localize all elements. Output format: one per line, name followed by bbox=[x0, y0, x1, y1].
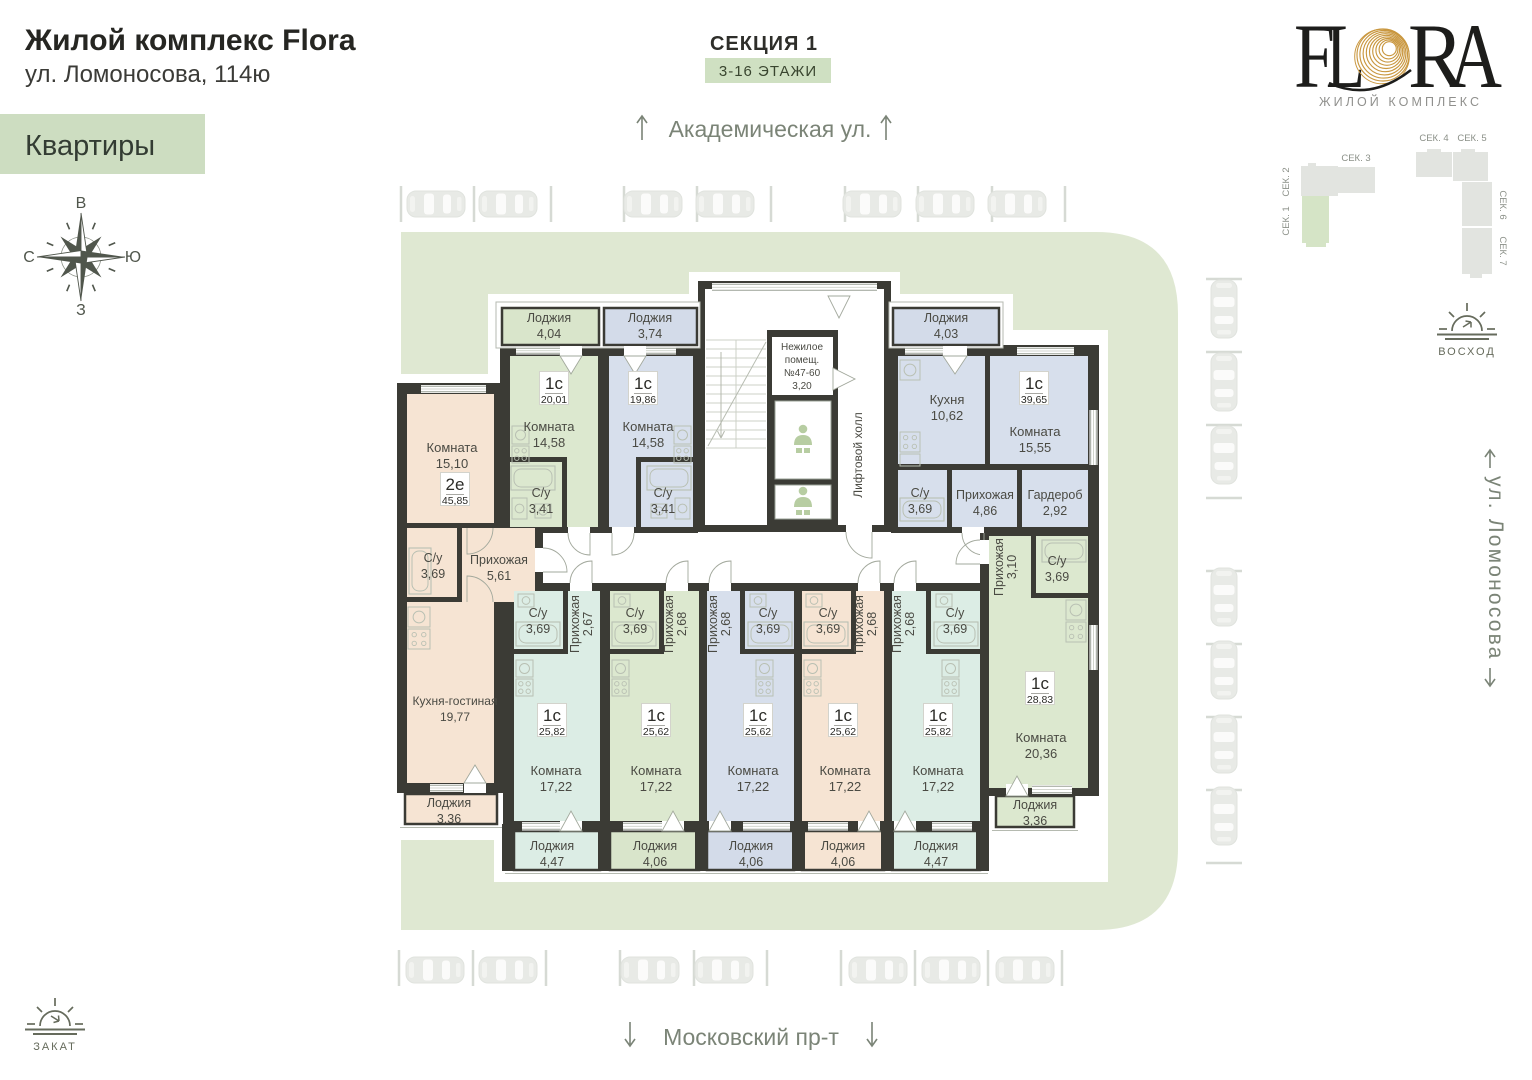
svg-text:Лоджия: Лоджия bbox=[1013, 798, 1057, 812]
svg-text:15,10: 15,10 bbox=[436, 456, 469, 471]
svg-text:3,41: 3,41 bbox=[651, 502, 675, 516]
svg-text:4,06: 4,06 bbox=[831, 855, 855, 869]
svg-text:2,68: 2,68 bbox=[903, 612, 917, 636]
svg-text:3,69: 3,69 bbox=[756, 622, 780, 636]
svg-text:1с: 1с bbox=[543, 706, 561, 725]
svg-text:4,47: 4,47 bbox=[540, 855, 564, 869]
svg-text:Лоджия: Лоджия bbox=[427, 796, 471, 810]
svg-text:Жилой комплекс Flora: Жилой комплекс Flora bbox=[24, 24, 356, 57]
svg-text:14,58: 14,58 bbox=[632, 435, 665, 450]
svg-text:2,92: 2,92 bbox=[1043, 504, 1067, 518]
svg-text:2,68: 2,68 bbox=[719, 612, 733, 636]
svg-text:14,58: 14,58 bbox=[533, 435, 566, 450]
svg-text:В: В bbox=[76, 195, 87, 212]
svg-text:17,22: 17,22 bbox=[540, 779, 573, 794]
svg-text:Комната: Комната bbox=[531, 763, 583, 778]
svg-text:С/у: С/у bbox=[946, 606, 966, 620]
svg-text:25,62: 25,62 bbox=[643, 726, 669, 738]
svg-text:Комната: Комната bbox=[623, 419, 675, 434]
svg-text:25,82: 25,82 bbox=[925, 726, 951, 738]
svg-text:45,85: 45,85 bbox=[442, 495, 468, 507]
svg-text:Прихожая: Прихожая bbox=[956, 488, 1014, 502]
svg-text:Московский пр-т: Московский пр-т bbox=[663, 1024, 839, 1050]
svg-text:3,69: 3,69 bbox=[1045, 570, 1069, 584]
svg-text:3,69: 3,69 bbox=[526, 622, 550, 636]
svg-text:4,47: 4,47 bbox=[924, 855, 948, 869]
svg-text:L: L bbox=[1326, 5, 1365, 107]
svg-text:1с: 1с bbox=[647, 706, 665, 725]
svg-text:2е: 2е bbox=[446, 475, 465, 494]
svg-text:С: С bbox=[23, 249, 35, 266]
svg-text:Лоджия: Лоджия bbox=[821, 839, 865, 853]
svg-text:3,10: 3,10 bbox=[1005, 555, 1019, 579]
svg-text:Лоджия: Лоджия bbox=[530, 839, 574, 853]
svg-text:1с: 1с bbox=[749, 706, 767, 725]
svg-text:3,69: 3,69 bbox=[623, 622, 647, 636]
svg-text:Комната: Комната bbox=[1010, 424, 1062, 439]
svg-text:С/у: С/у bbox=[911, 486, 931, 500]
svg-text:Гардероб: Гардероб bbox=[1028, 488, 1083, 502]
svg-text:17,22: 17,22 bbox=[922, 779, 955, 794]
svg-text:1с: 1с bbox=[545, 374, 563, 393]
svg-text:3,20: 3,20 bbox=[792, 381, 812, 392]
svg-text:25,62: 25,62 bbox=[830, 726, 856, 738]
svg-text:3,41: 3,41 bbox=[529, 502, 553, 516]
svg-text:20,01: 20,01 bbox=[541, 394, 567, 406]
svg-text:С/у: С/у bbox=[654, 486, 674, 500]
svg-text:Академическая ул.: Академическая ул. bbox=[669, 116, 872, 142]
svg-text:ВОСХОД: ВОСХОД bbox=[1438, 346, 1496, 358]
svg-text:ЖИЛОЙ КОМПЛЕКС: ЖИЛОЙ КОМПЛЕКС bbox=[1319, 94, 1484, 109]
svg-text:17,22: 17,22 bbox=[737, 779, 770, 794]
svg-text:№47-60: №47-60 bbox=[784, 368, 821, 379]
svg-text:3,74: 3,74 bbox=[638, 327, 662, 341]
svg-text:3,36: 3,36 bbox=[437, 812, 461, 826]
svg-text:4,03: 4,03 bbox=[934, 327, 958, 341]
svg-text:Прихожая: Прихожая bbox=[890, 595, 904, 653]
svg-text:1с: 1с bbox=[929, 706, 947, 725]
svg-text:39,65: 39,65 bbox=[1021, 394, 1047, 406]
svg-text:4,06: 4,06 bbox=[739, 855, 763, 869]
svg-text:Лоджия: Лоджия bbox=[633, 839, 677, 853]
svg-text:17,22: 17,22 bbox=[829, 779, 862, 794]
svg-text:помещ.: помещ. bbox=[785, 355, 819, 366]
svg-text:3,69: 3,69 bbox=[421, 567, 445, 581]
svg-text:Комната: Комната bbox=[631, 763, 683, 778]
svg-text:Лоджия: Лоджия bbox=[527, 311, 571, 325]
svg-text:4,04: 4,04 bbox=[537, 327, 561, 341]
svg-text:1с: 1с bbox=[1031, 674, 1049, 693]
svg-text:СЕК. 1: СЕК. 1 bbox=[1281, 206, 1292, 235]
svg-text:Комната: Комната bbox=[913, 763, 965, 778]
svg-text:Комната: Комната bbox=[427, 440, 479, 455]
svg-text:СЕК. 2: СЕК. 2 bbox=[1281, 167, 1292, 196]
svg-text:СЕК. 6: СЕК. 6 bbox=[1497, 190, 1508, 219]
svg-text:С/у: С/у bbox=[626, 606, 646, 620]
svg-text:СЕК. 5: СЕК. 5 bbox=[1457, 133, 1486, 144]
svg-text:25,82: 25,82 bbox=[539, 726, 565, 738]
svg-text:1с: 1с bbox=[834, 706, 852, 725]
svg-text:Прихожая: Прихожая bbox=[852, 595, 866, 653]
svg-text:Лоджия: Лоджия bbox=[914, 839, 958, 853]
svg-text:3,69: 3,69 bbox=[943, 622, 967, 636]
svg-text:З: З bbox=[76, 302, 86, 319]
svg-text:ул. Ломоносова, 114ю: ул. Ломоносова, 114ю bbox=[25, 61, 270, 88]
svg-text:2,68: 2,68 bbox=[865, 612, 879, 636]
svg-text:С/у: С/у bbox=[529, 606, 549, 620]
svg-text:4,86: 4,86 bbox=[973, 504, 997, 518]
svg-text:С/у: С/у bbox=[532, 486, 552, 500]
svg-text:Кухня-гостиная: Кухня-гостиная bbox=[413, 694, 498, 708]
svg-text:2,68: 2,68 bbox=[675, 612, 689, 636]
svg-text:2,67: 2,67 bbox=[581, 612, 595, 636]
svg-text:4,06: 4,06 bbox=[643, 855, 667, 869]
svg-text:28,83: 28,83 bbox=[1027, 694, 1053, 706]
svg-text:3-16 ЭТАЖИ: 3-16 ЭТАЖИ bbox=[719, 63, 817, 80]
svg-text:С/у: С/у bbox=[424, 551, 444, 565]
svg-text:Квартиры: Квартиры bbox=[25, 130, 155, 162]
svg-text:1с: 1с bbox=[634, 374, 652, 393]
svg-text:15,55: 15,55 bbox=[1019, 440, 1052, 455]
svg-text:С/у: С/у bbox=[1048, 554, 1068, 568]
svg-text:3,69: 3,69 bbox=[908, 502, 932, 516]
svg-text:17,22: 17,22 bbox=[640, 779, 673, 794]
svg-text:С/у: С/у bbox=[819, 606, 839, 620]
svg-text:A: A bbox=[1449, 5, 1502, 107]
svg-text:25,62: 25,62 bbox=[745, 726, 771, 738]
svg-text:3,69: 3,69 bbox=[816, 622, 840, 636]
svg-text:19,86: 19,86 bbox=[630, 394, 656, 406]
svg-text:Нежилое: Нежилое bbox=[781, 342, 823, 353]
svg-text:Комната: Комната bbox=[1016, 730, 1068, 745]
svg-text:Прихожая: Прихожая bbox=[706, 595, 720, 653]
svg-text:Лоджия: Лоджия bbox=[729, 839, 773, 853]
svg-text:Лифтовой холл: Лифтовой холл bbox=[851, 412, 865, 497]
svg-text:СЕК. 4: СЕК. 4 bbox=[1419, 133, 1448, 144]
svg-text:ЗАКАТ: ЗАКАТ bbox=[33, 1041, 77, 1053]
svg-text:С/у: С/у bbox=[759, 606, 779, 620]
svg-text:19,77: 19,77 bbox=[440, 710, 470, 724]
svg-text:Прихожая: Прихожая bbox=[568, 595, 582, 653]
svg-text:СЕК. 3: СЕК. 3 bbox=[1341, 153, 1370, 164]
svg-text:1с: 1с bbox=[1025, 374, 1043, 393]
svg-text:Лоджия: Лоджия bbox=[628, 311, 672, 325]
svg-text:Лоджия: Лоджия bbox=[924, 311, 968, 325]
svg-text:Комната: Комната bbox=[728, 763, 780, 778]
svg-text:Ю: Ю bbox=[125, 249, 141, 266]
svg-text:3,36: 3,36 bbox=[1023, 814, 1047, 828]
svg-text:Прихожая: Прихожая bbox=[470, 553, 528, 567]
svg-text:20,36: 20,36 bbox=[1025, 746, 1058, 761]
svg-text:5,61: 5,61 bbox=[487, 569, 511, 583]
svg-text:ул. Ломоносова: ул. Ломоносова bbox=[1484, 476, 1507, 661]
svg-text:СЕК. 7: СЕК. 7 bbox=[1497, 236, 1508, 265]
svg-text:10,62: 10,62 bbox=[931, 408, 964, 423]
svg-text:Комната: Комната bbox=[524, 419, 576, 434]
svg-text:Кухня: Кухня bbox=[930, 392, 965, 407]
svg-text:СЕКЦИЯ 1: СЕКЦИЯ 1 bbox=[710, 33, 818, 55]
svg-text:Прихожая: Прихожая bbox=[662, 595, 676, 653]
svg-text:Прихожая: Прихожая bbox=[992, 538, 1006, 596]
svg-text:Комната: Комната bbox=[820, 763, 872, 778]
